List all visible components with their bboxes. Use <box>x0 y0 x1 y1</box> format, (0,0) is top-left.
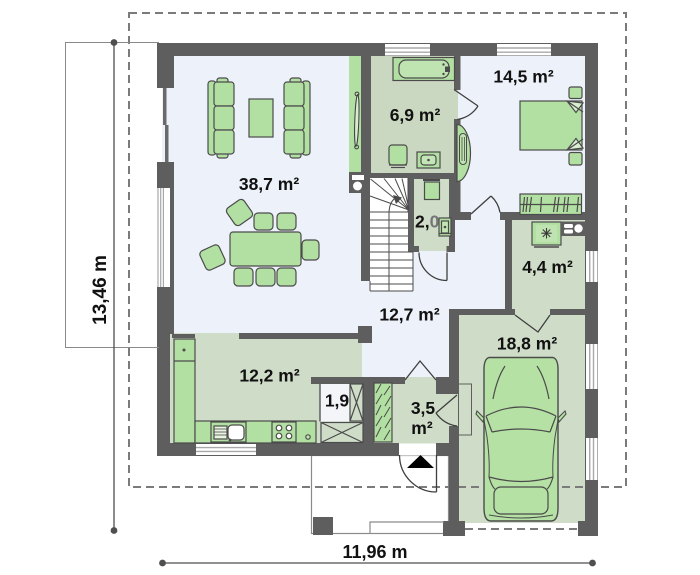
svg-text:3,5: 3,5 <box>411 398 436 418</box>
svg-text:m²: m² <box>411 418 433 438</box>
svg-text:13,46 m: 13,46 m <box>90 255 111 325</box>
svg-text:12,2 m²: 12,2 m² <box>239 366 299 386</box>
svg-text:6,9 m²: 6,9 m² <box>390 105 441 125</box>
svg-text:11,96 m: 11,96 m <box>342 542 407 562</box>
svg-text:14,5 m²: 14,5 m² <box>493 67 553 87</box>
svg-text:12,7 m²: 12,7 m² <box>379 305 439 325</box>
svg-text:2,0: 2,0 <box>415 212 440 232</box>
svg-text:18,8 m²: 18,8 m² <box>497 334 557 354</box>
svg-text:4,4 m²: 4,4 m² <box>522 257 573 277</box>
svg-text:38,7 m²: 38,7 m² <box>239 174 299 194</box>
svg-text:1,9: 1,9 <box>325 391 350 411</box>
